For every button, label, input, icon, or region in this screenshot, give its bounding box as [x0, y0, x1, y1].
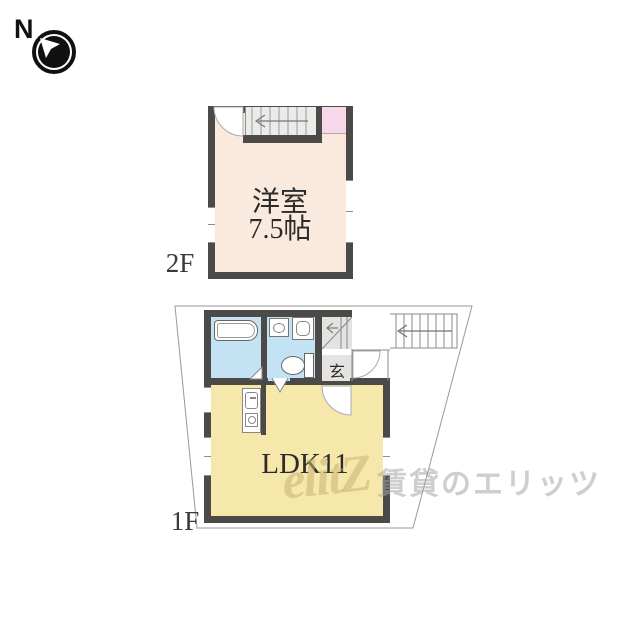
interior-stairs-arrow-icon: [327, 323, 338, 333]
floorplan-canvas: N: [0, 0, 640, 640]
bathroom-door-marker-icon: [250, 367, 262, 379]
floor1-linework: [0, 0, 640, 640]
floor1-plan: 玄 LDK11 1F elitZ 賃貸のエリッツ: [0, 0, 640, 640]
entrance-door-arc-icon: [353, 351, 380, 378]
interior-stairs-icon: [322, 317, 352, 349]
watermark-text: 賃貸のエリッツ: [377, 459, 601, 503]
washroom-door-marker-icon: [272, 378, 288, 392]
ldk-door-arc-icon: [322, 386, 351, 415]
watermark-logo: elitZ: [279, 444, 373, 512]
entrance-label: 玄: [322, 358, 352, 382]
floor1-label: 1F: [168, 506, 202, 537]
